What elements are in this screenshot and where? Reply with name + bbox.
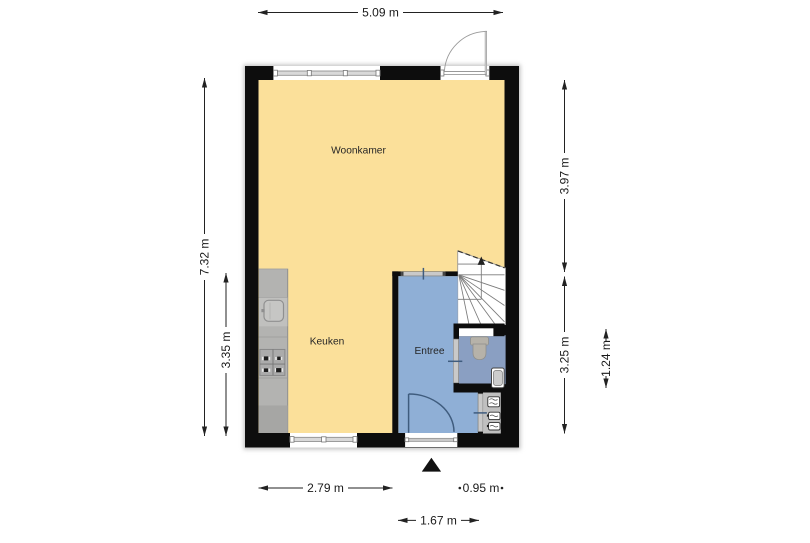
- svg-text:3.97 m: 3.97 m: [558, 158, 572, 195]
- svg-text:Entree: Entree: [414, 346, 444, 357]
- svg-text:Woonkamer: Woonkamer: [331, 146, 386, 157]
- svg-text:0.95 m: 0.95 m: [463, 481, 500, 495]
- svg-text:5.09 m: 5.09 m: [362, 6, 399, 20]
- svg-text:3.35 m: 3.35 m: [219, 332, 233, 369]
- svg-text:2.79 m: 2.79 m: [307, 481, 344, 495]
- svg-text:3.25 m: 3.25 m: [558, 337, 572, 374]
- svg-text:1.24 m: 1.24 m: [599, 340, 613, 377]
- svg-text:Keuken: Keuken: [310, 337, 345, 348]
- svg-text:7.32 m: 7.32 m: [198, 239, 212, 276]
- svg-text:1.67 m: 1.67 m: [420, 513, 457, 527]
